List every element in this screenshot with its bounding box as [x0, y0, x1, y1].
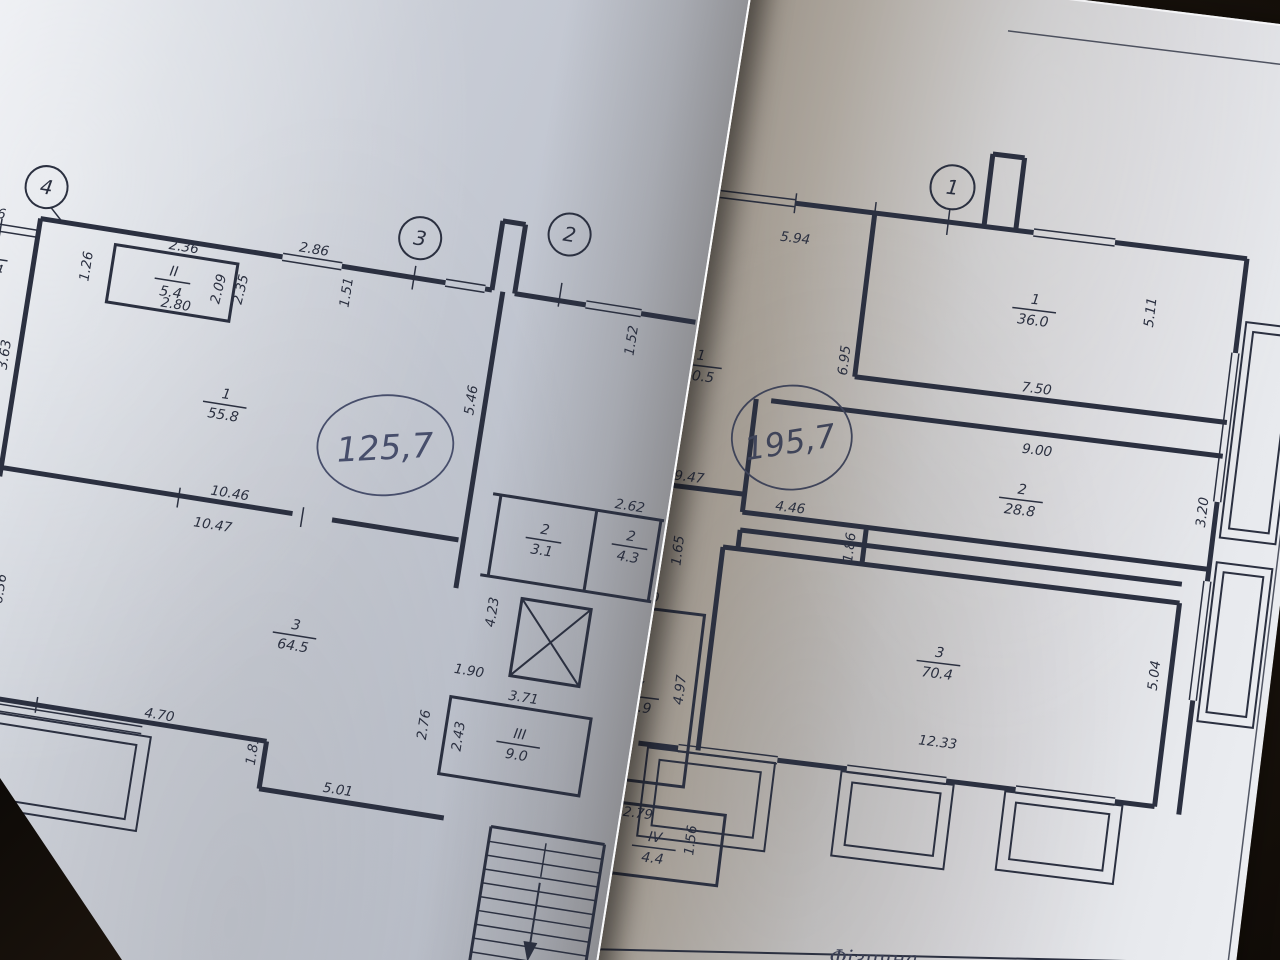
- room-area: 70.4: [921, 664, 954, 684]
- dim-label: 1.81: [243, 734, 264, 766]
- axis-circle-3-label: 3: [412, 225, 428, 251]
- room-num: II: [169, 263, 180, 280]
- room-num: 3: [934, 645, 945, 662]
- room-label-1-36_0: 1 36.0: [1010, 290, 1058, 332]
- arrow-shaft: [530, 883, 540, 946]
- room-label-2-28_8: 2 28.8: [997, 479, 1045, 521]
- dim-label: 1.86: [840, 532, 860, 564]
- handwritten-number: 125,7: [335, 426, 435, 471]
- room-num: 1: [696, 347, 707, 364]
- room-area: 9.0: [504, 746, 529, 765]
- room-area: 64.5: [276, 636, 309, 657]
- dim-label: 3.63: [0, 339, 15, 371]
- dim-label: 1.51: [337, 276, 358, 308]
- room-area: 4.3: [616, 548, 640, 567]
- dim-label: 2.35: [230, 273, 253, 306]
- room-label-III-9_0: III 9.0: [493, 724, 542, 767]
- room-area: 3.1: [529, 541, 553, 560]
- dim-label: 6.95: [835, 345, 855, 377]
- dim-label: 9.00: [1021, 441, 1053, 461]
- dim-label: 3.46: [0, 202, 7, 223]
- room-num: 1: [1030, 292, 1041, 309]
- room-label-2-4_3: 2 4.3: [609, 526, 650, 568]
- partition-walls: [12, 245, 693, 960]
- dim-label: 1.90: [453, 661, 485, 682]
- axis-circle-4-label: 4: [38, 174, 54, 200]
- window-lines: [0, 183, 644, 800]
- room-label-2-3_1: 2 3.1: [523, 520, 564, 562]
- room-num: 2: [539, 522, 550, 539]
- arrow-head: [520, 941, 537, 960]
- fraction-line: [632, 845, 676, 850]
- dim-label: 1.56: [681, 824, 701, 856]
- dim-label: 2.43: [448, 720, 469, 752]
- axis-circle-1-label: 1: [945, 175, 961, 200]
- handwritten-total-right: 195,7: [717, 368, 867, 507]
- dim-label: 1.65: [668, 535, 688, 567]
- room-area: 4.4: [0, 260, 4, 279]
- dim-label: 3.20: [1193, 496, 1213, 528]
- dim-label: 12.33: [918, 732, 958, 753]
- dim-label: 10.47: [192, 514, 233, 536]
- room-area: 28.8: [1003, 501, 1036, 521]
- room-num: 2: [625, 528, 636, 545]
- dim-label: 5.04: [1145, 660, 1165, 692]
- room-label-3-70_4: 3 70.4: [914, 643, 962, 685]
- room-area: 4.4: [640, 849, 664, 868]
- dim-label: 4.97: [670, 674, 690, 706]
- fraction-line: [0, 257, 8, 261]
- title-block-text: Фізична: [829, 945, 918, 960]
- dim-label: 2.76: [414, 709, 435, 741]
- drawing-frame-border: [899, 23, 1280, 960]
- room-num: IV: [647, 829, 664, 847]
- dim-label: 6.36: [0, 573, 10, 605]
- handwritten-number: 195,7: [742, 416, 839, 468]
- room-label-3-64_5: 3 64.5: [270, 614, 319, 657]
- dim-label: 1.26: [76, 250, 97, 282]
- dim-label: 5.46: [461, 384, 482, 416]
- room-label-1-55_8: 1 55.8: [200, 383, 249, 426]
- dim-label: 2.79: [622, 804, 654, 824]
- balconies: [637, 256, 1280, 909]
- handwritten-total-left: 125,7: [300, 371, 472, 520]
- room-num: 3: [0, 240, 1, 257]
- axis-circle-2-label: 2: [561, 222, 577, 248]
- room-area: 36.0: [1016, 311, 1049, 331]
- dim-label: 1.52: [622, 324, 643, 356]
- dim-label: 5.11: [1141, 296, 1161, 328]
- photo-of-floor-plans: Фізична 1 1 60.5 1 36.0 2 28.8 3: [0, 0, 1280, 960]
- room-num: 2: [1017, 482, 1028, 499]
- room-num: III: [512, 726, 527, 744]
- window-lines: [628, 178, 1252, 813]
- room-num: 3: [290, 617, 301, 634]
- room-num: 1: [221, 386, 232, 403]
- dim-label: 4.23: [482, 596, 503, 628]
- shaft-x-mark: [510, 599, 591, 687]
- room-area: 55.8: [206, 405, 239, 426]
- room-label-3-4_4: 3 4.4: [0, 239, 10, 280]
- dim-label: 2.09: [207, 272, 230, 305]
- dim-label: 5.94: [779, 229, 811, 249]
